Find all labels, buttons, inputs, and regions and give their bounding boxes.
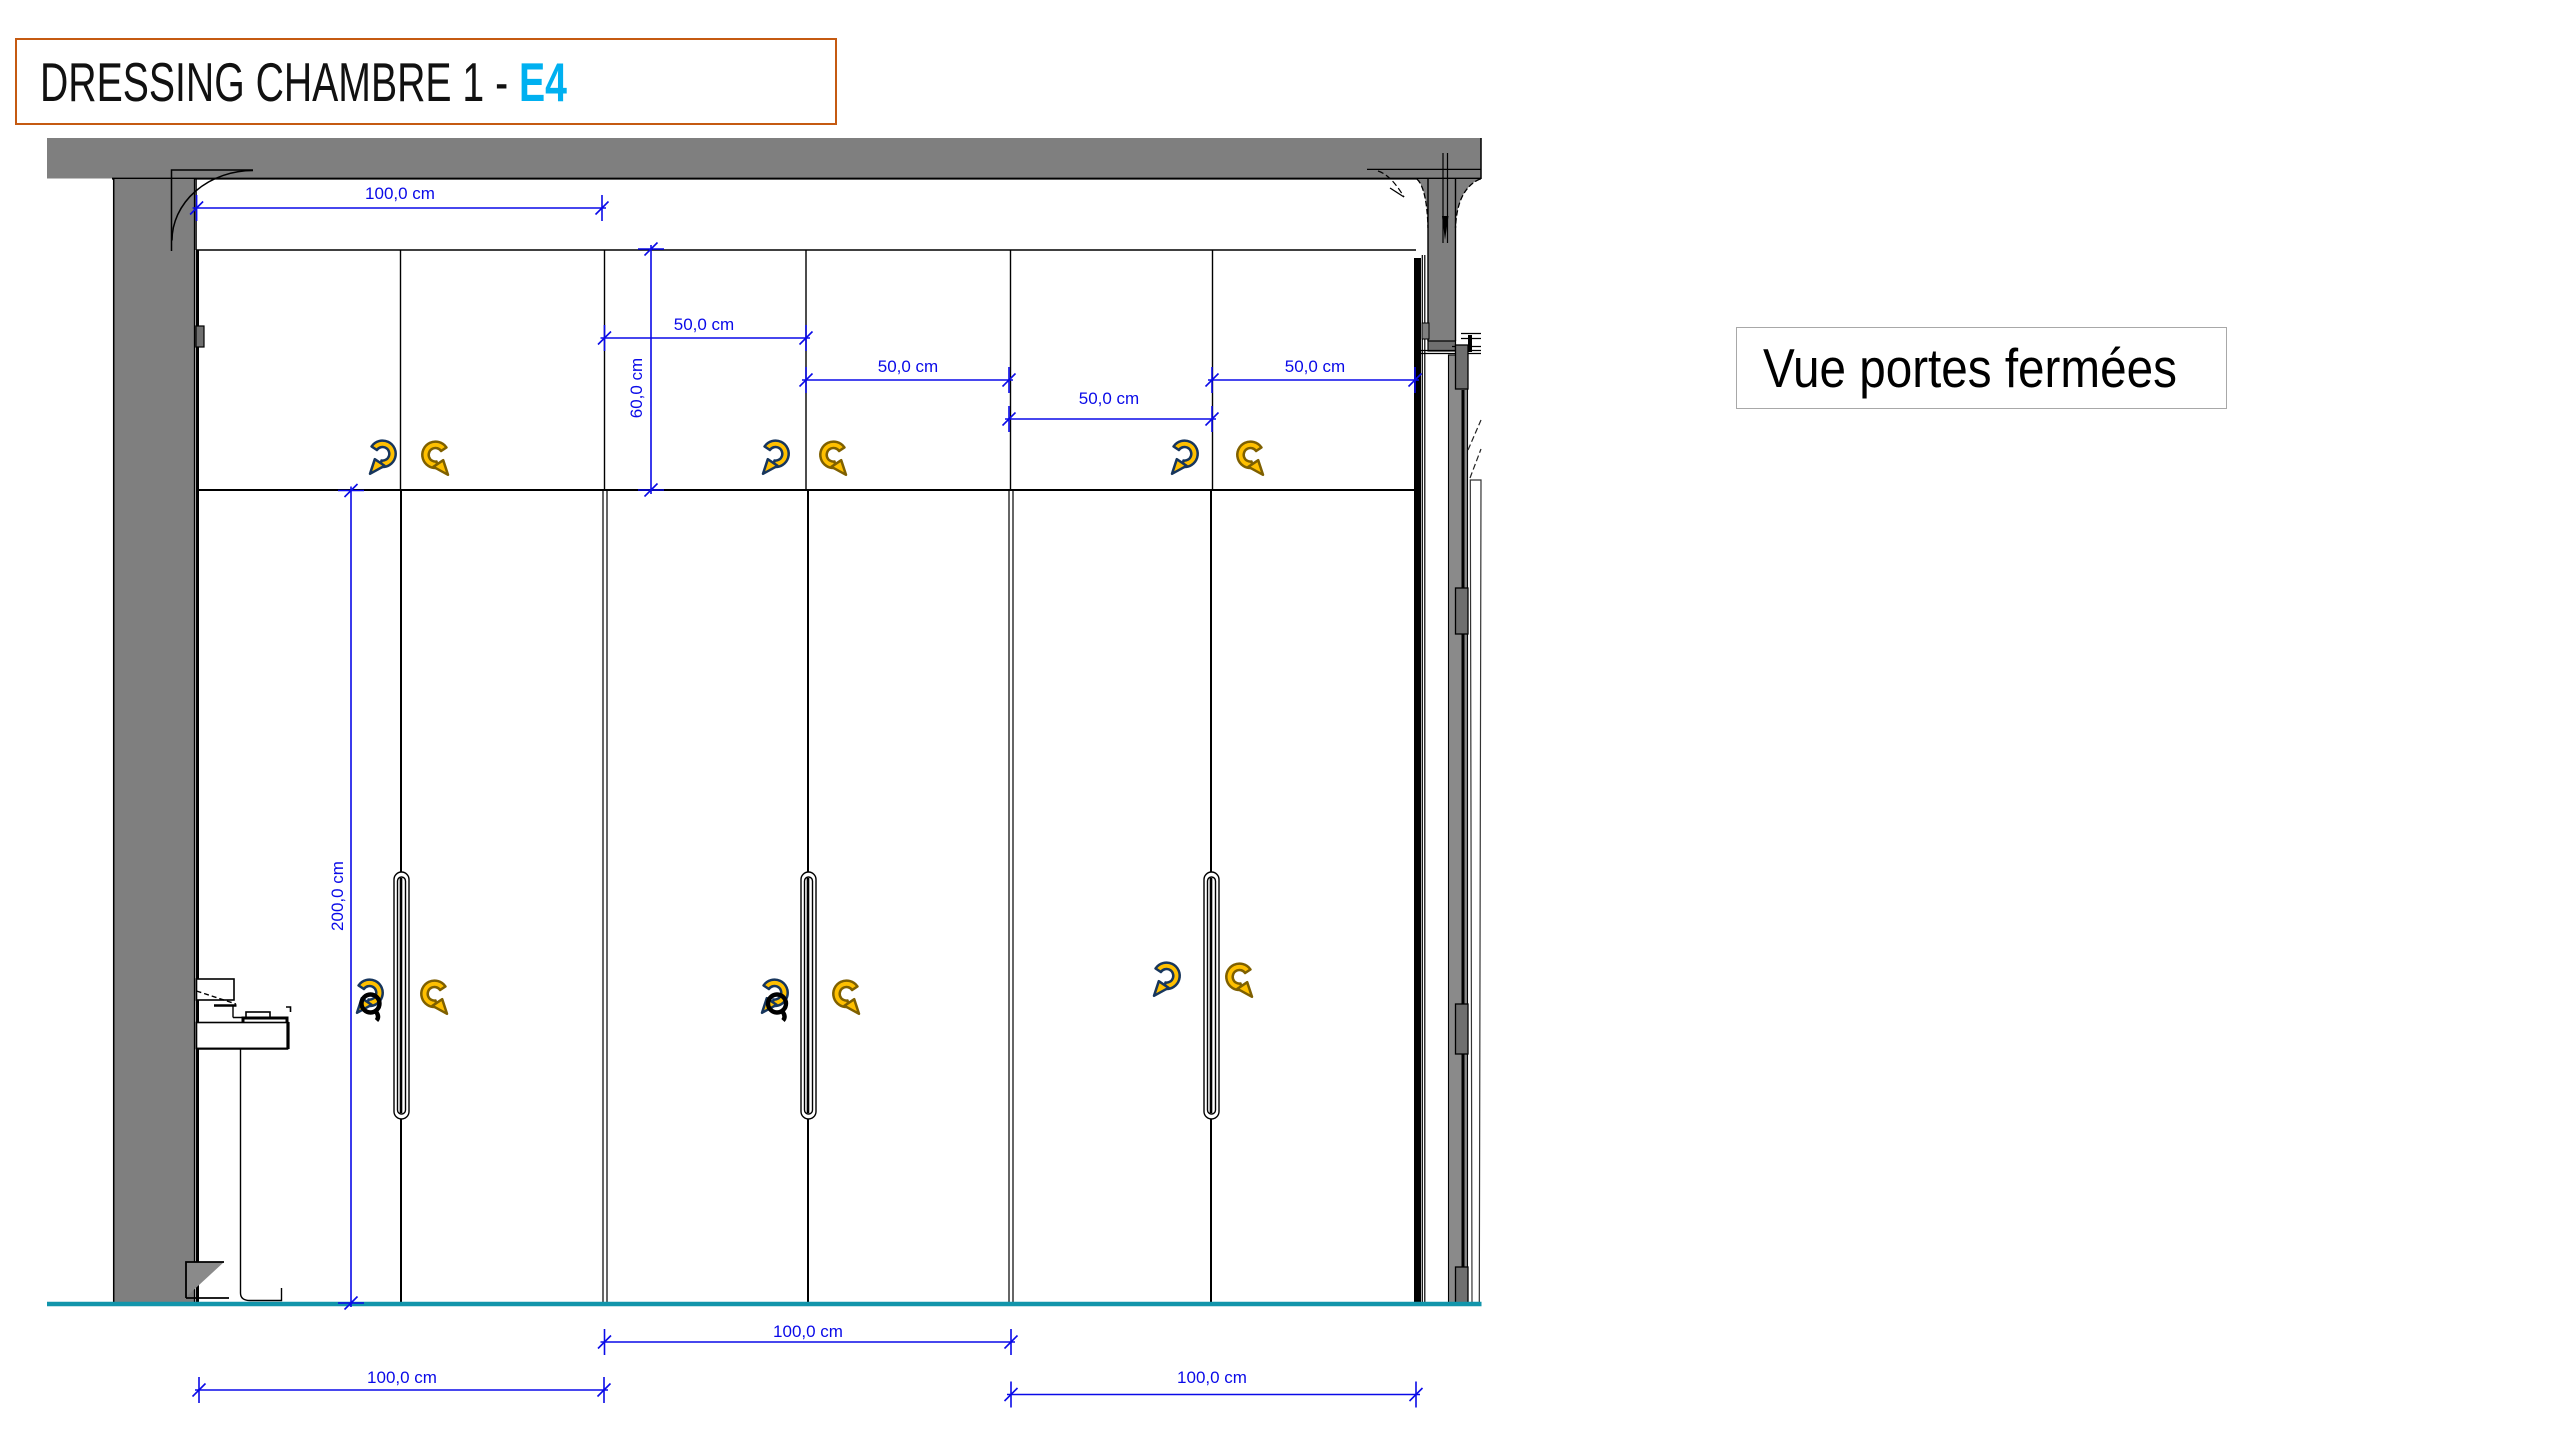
svg-text:50,0 cm: 50,0 cm [1285, 357, 1345, 376]
svg-text:100,0 cm: 100,0 cm [365, 184, 435, 203]
svg-text:200,0 cm: 200,0 cm [328, 861, 347, 931]
svg-text:50,0 cm: 50,0 cm [878, 357, 938, 376]
svg-text:60,0 cm: 60,0 cm [627, 358, 646, 418]
svg-text:100,0 cm: 100,0 cm [773, 1322, 843, 1341]
svg-text:100,0 cm: 100,0 cm [1177, 1368, 1247, 1387]
svg-text:50,0 cm: 50,0 cm [1079, 389, 1139, 408]
svg-text:100,0 cm: 100,0 cm [367, 1368, 437, 1387]
svg-text:50,0 cm: 50,0 cm [674, 315, 734, 334]
